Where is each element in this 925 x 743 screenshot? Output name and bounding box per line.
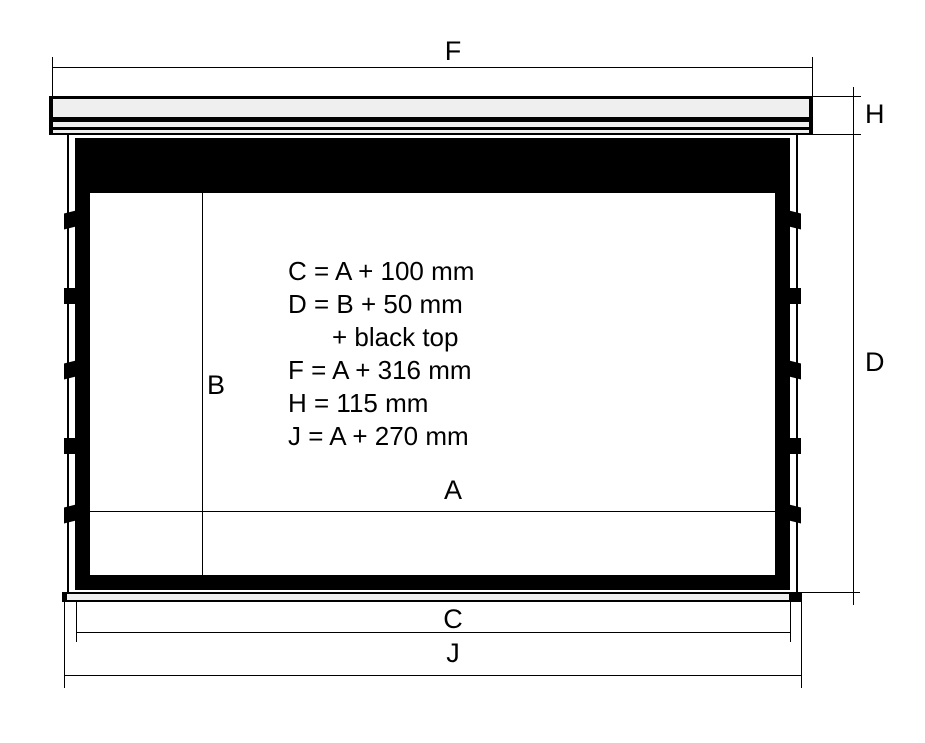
tension-tab (789, 505, 801, 524)
dim-label-c: C (440, 606, 466, 633)
tension-tab (64, 505, 76, 524)
dim-label-j: J (440, 640, 466, 667)
dim-line-h-d (853, 87, 854, 605)
screen-casing (49, 96, 813, 135)
formula-line: F = A + 316 mm (288, 354, 474, 387)
dim-ext-d-bottom (790, 592, 860, 593)
tension-tab (64, 211, 76, 230)
tension-tab (64, 438, 76, 454)
formula-line: H = 115 mm (288, 387, 474, 420)
tension-tab (789, 438, 801, 454)
tension-tab (64, 288, 76, 304)
dim-ext-f-left (52, 57, 53, 96)
casing-slot-line-thick (53, 117, 809, 122)
dim-label-h: H (865, 101, 885, 128)
bottom-slat (62, 592, 802, 602)
tension-tab (64, 361, 76, 380)
dim-line-j (64, 675, 802, 676)
formula-block: C = A + 100 mm D = B + 50 mm + black top… (288, 255, 474, 453)
formula-line: D = B + 50 mm (288, 288, 474, 321)
dim-line-c (76, 632, 791, 633)
dim-line-b (202, 193, 203, 575)
screen-dimension-diagram: F H B A C = A + 100 mm D = B + 50 mm + b… (0, 0, 925, 743)
dim-ext-c-right (790, 601, 791, 642)
dim-ext-c-left (76, 601, 77, 642)
dim-line-a (90, 511, 775, 512)
tension-tab (789, 288, 801, 304)
tension-tab (789, 211, 801, 230)
formula-line: C = A + 100 mm (288, 255, 474, 288)
dim-label-b: B (207, 372, 225, 399)
tension-tab (789, 361, 801, 380)
dim-ext-f-right (812, 57, 813, 96)
formula-line: J = A + 270 mm (288, 420, 474, 453)
dim-label-f: F (440, 38, 466, 65)
dim-label-a: A (440, 477, 466, 504)
formula-line: + black top (332, 321, 474, 354)
dim-label-d: D (865, 349, 885, 376)
casing-slot-line-thin (53, 127, 809, 130)
dim-line-f (52, 67, 813, 68)
